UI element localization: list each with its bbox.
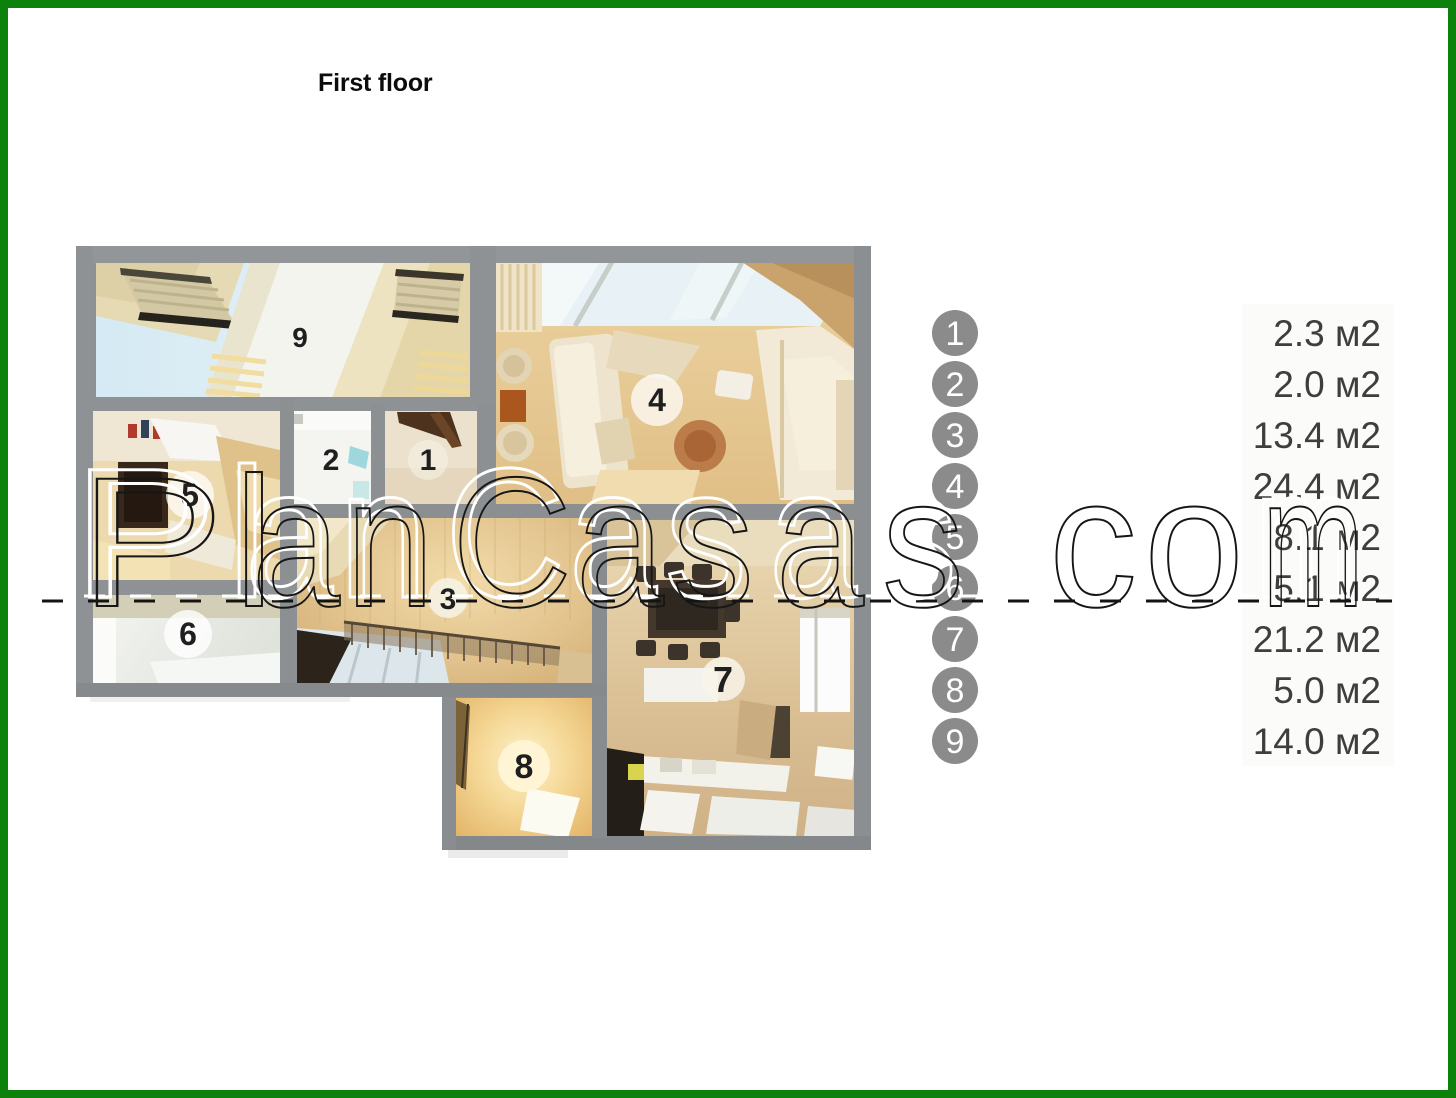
svg-text:First floor: First floor [318, 69, 433, 97]
svg-text:s: s [672, 440, 754, 646]
svg-text:7: 7 [713, 659, 733, 700]
svg-text:8: 8 [515, 748, 534, 786]
svg-text:c: c [1049, 440, 1137, 646]
svg-text:P: P [79, 439, 225, 646]
svg-text:s: s [882, 440, 964, 646]
svg-text:n: n [346, 440, 434, 646]
svg-text:9: 9 [292, 322, 308, 353]
svg-text:a: a [252, 440, 340, 646]
svg-text:C: C [452, 440, 572, 646]
svg-text:8: 8 [946, 672, 965, 710]
svg-text:14.0 м2: 14.0 м2 [1253, 721, 1381, 762]
svg-text:m: m [1262, 440, 1364, 646]
svg-text:2.3 м2: 2.3 м2 [1273, 313, 1381, 354]
svg-text:1: 1 [946, 315, 965, 353]
svg-text:a: a [776, 440, 864, 646]
svg-text:2: 2 [946, 366, 965, 404]
svg-text:5.0 м2: 5.0 м2 [1273, 670, 1381, 711]
svg-text:4: 4 [648, 382, 666, 418]
svg-text:2.0 м2: 2.0 м2 [1273, 364, 1381, 405]
svg-text:9: 9 [946, 723, 965, 761]
svg-text:o: o [1144, 440, 1244, 646]
svg-text:a: a [576, 440, 664, 646]
